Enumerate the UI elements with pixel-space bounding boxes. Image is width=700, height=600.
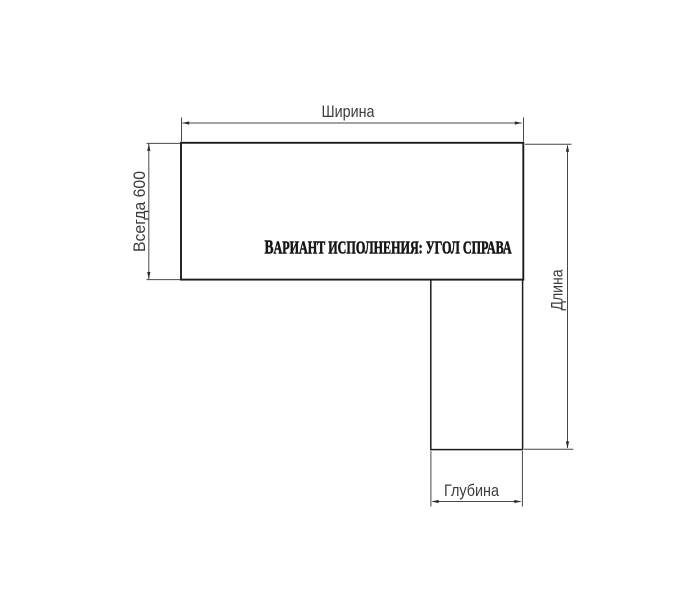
svg-text:Глубина: Глубина [444,481,499,500]
svg-text:Длина: Длина [548,269,567,310]
svg-text:Ширина: Ширина [322,102,375,121]
svg-text:Всегда 600: Всегда 600 [130,171,149,252]
svg-text:ВАРИАНТ ИСПОЛНЕНИЯ: УГОЛ СПРАВ: ВАРИАНТ ИСПОЛНЕНИЯ: УГОЛ СПРАВА [265,236,512,258]
